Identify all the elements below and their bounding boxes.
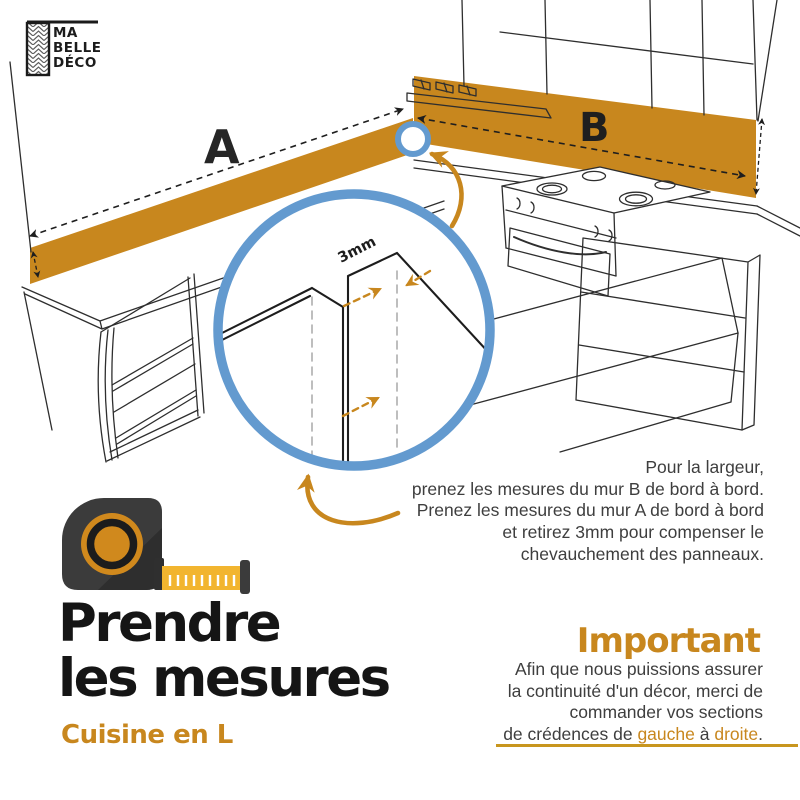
logo-pattern-box [27,23,49,75]
measure-line: Pour la largeur, [412,457,764,479]
title-line-1: Prendre [58,596,389,651]
corner-junction-marker [398,124,428,154]
logo-word-deco: DÉCO [53,56,101,71]
important-line: Afin que nous puissions assurer [503,659,763,681]
measure-line: chevauchement des panneaux. [412,544,764,566]
logo-word-ma: MA [53,26,101,41]
important-underline [496,744,798,747]
measure-line: Prenez les mesures du mur A de bord à bo… [412,500,764,522]
infographic-canvas: A B 3mm [0,0,800,800]
last-line-part2: à [695,724,714,744]
measure-line: et retirez 3mm pour compenser le [412,522,764,544]
logo-wordmark: MA BELLE DÉCO [53,26,101,70]
last-line-droite: droite [714,724,758,744]
tape-measure-icon [58,496,258,601]
page-title: Prendre les mesures [58,596,389,706]
page-subtitle: Cuisine en L [61,720,233,750]
junction-arrow [432,154,462,226]
important-text: Afin que nous puissions assurer la conti… [503,659,763,746]
important-line-last: de crédences de gauche à droite. [503,724,763,746]
callout-arrow [307,477,398,523]
tape-end-hook [240,560,250,594]
title-line-2: les mesures [58,651,389,706]
wall-b-label: B [579,105,610,151]
wall-a-label: A [204,120,240,174]
wall-b-height-line [756,119,762,194]
last-line-gauche: gauche [637,724,694,744]
island-counter [460,258,738,452]
left-shelf-cabinet [98,274,204,462]
measure-instructions: Pour la largeur, prenez les mesures du m… [412,457,764,566]
measure-line: prenez les mesures du mur B de bord à bo… [412,479,764,501]
left-wall-edge [10,62,31,252]
zoom-callout: 3mm [204,194,490,470]
important-line: la continuité d'un décor, merci de [503,681,763,703]
logo-word-belle: BELLE [53,41,101,56]
stove [502,167,710,296]
last-line-part1: de crédences de [503,724,637,744]
important-heading: Important [577,621,760,661]
last-line-part3: . [758,724,763,744]
important-line: commander vos sections [503,702,763,724]
